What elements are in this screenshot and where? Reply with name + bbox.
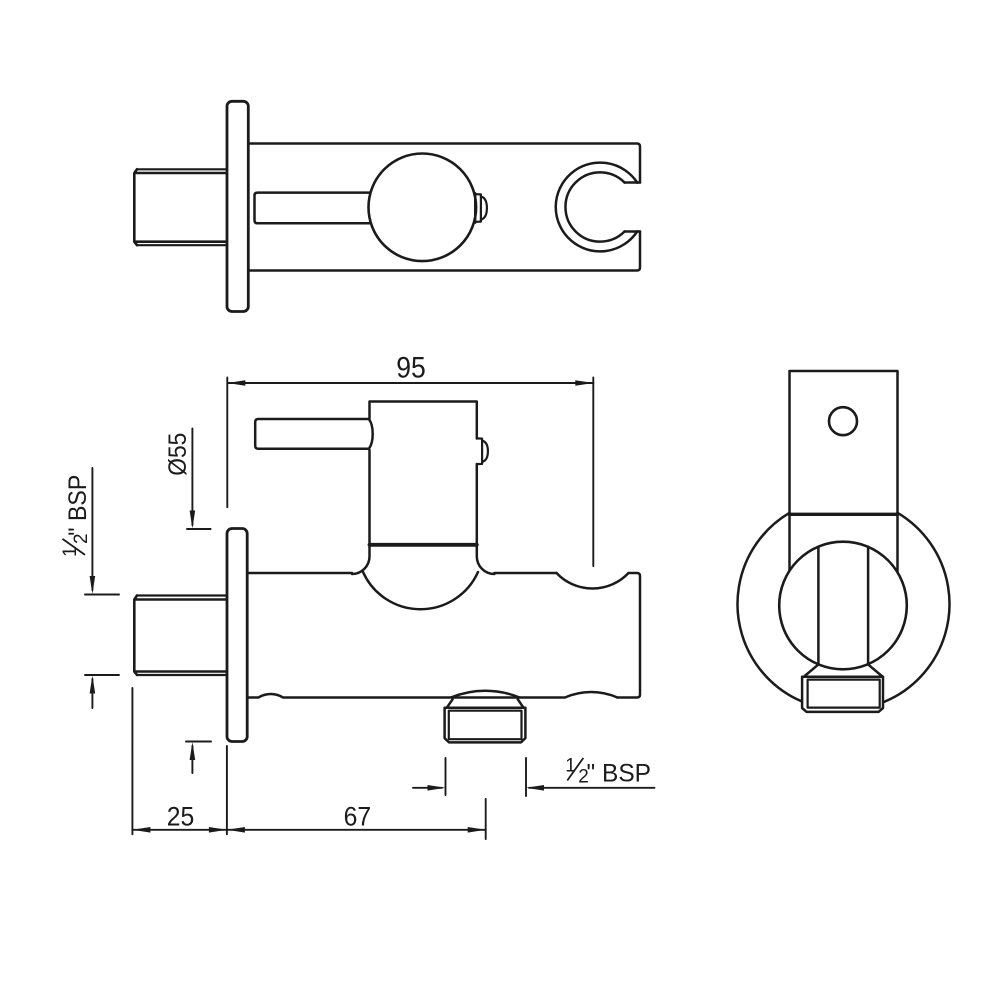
svg-text:" BSP: " BSP — [587, 760, 652, 788]
svg-text:1: 1 — [565, 756, 576, 777]
svg-text:25: 25 — [167, 801, 195, 831]
svg-text:67: 67 — [344, 802, 372, 832]
svg-text:95: 95 — [396, 351, 426, 384]
svg-text:1: 1 — [60, 546, 81, 557]
svg-text:Ø55: Ø55 — [164, 433, 192, 476]
svg-text:" BSP: " BSP — [64, 475, 92, 536]
